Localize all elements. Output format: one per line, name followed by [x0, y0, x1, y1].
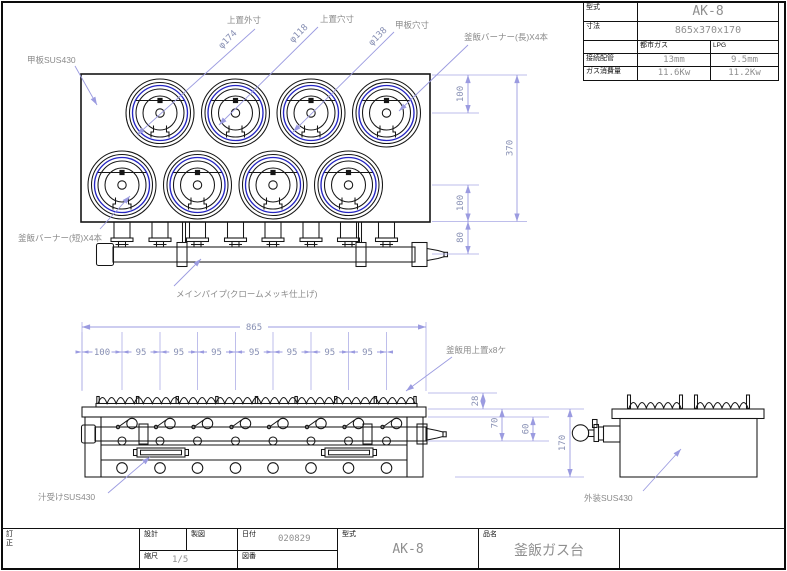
dim-arrow [273, 350, 280, 353]
title-product-cell: 品名 釜飯ガス台 [478, 529, 619, 568]
drawer-slot-left [134, 448, 189, 457]
title-date-label: 日付 [240, 530, 256, 539]
dim-arrow [236, 350, 243, 353]
height-dimensions: 28 70 60 170 [428, 393, 584, 477]
side-body [620, 419, 757, 478]
label-dia-138: φ138 [367, 26, 389, 48]
front-nozzle [427, 429, 443, 441]
drawing-shape [114, 222, 130, 238]
burners-group [88, 79, 421, 219]
title-revision-cell: 訂 正 [2, 529, 139, 568]
dim-60: 60 [522, 424, 532, 435]
burner [88, 151, 156, 219]
label-exterior: 外装SUS430 [584, 493, 633, 503]
dim-arrow [154, 350, 161, 353]
burner [239, 151, 307, 219]
spec-dims-label: 寸法 [584, 22, 637, 31]
front-right-leg [407, 417, 423, 477]
vent-hole [343, 463, 354, 474]
title-model-cell: 型式 AK-8 [337, 529, 478, 568]
vent-hole [192, 463, 203, 474]
drawing-shape [190, 222, 206, 238]
dim-pitch-label: 95 [324, 348, 335, 358]
leader-top-ring-od [137, 29, 255, 135]
front-top-plate [82, 407, 426, 417]
title-design-label: 設計 [142, 530, 158, 539]
burner-ring [344, 181, 352, 189]
spec-dims-value: 865x370x170 [638, 22, 778, 39]
dim-pitch-label: 95 [136, 348, 147, 358]
side-trivet-post [695, 395, 698, 409]
dim-arrow [342, 350, 349, 353]
burner-stem [376, 222, 398, 247]
title-date-value: 020829 [278, 534, 311, 544]
spec-consumption-city: 11.6Kw [638, 67, 710, 79]
spec-col-city-gas: 都市ガス [638, 41, 710, 50]
burner-ring [307, 109, 315, 117]
leader-top-ring-count [406, 357, 452, 391]
burner-pilot [157, 98, 162, 103]
leader-drip-tray [108, 457, 150, 493]
burner [126, 79, 194, 147]
spec-col-lpg: LPG [711, 41, 778, 50]
title-scale-value: 1/5 [172, 555, 188, 565]
dim-pitch-label: 100 [94, 348, 110, 358]
burner-ring [156, 109, 164, 117]
burner-ring [193, 181, 201, 189]
front-nozzle-tip [443, 432, 446, 437]
label-plate-hole: 甲板穴寸 [395, 20, 430, 30]
spec-model-label: 型式 [584, 3, 637, 12]
front-body [101, 417, 407, 477]
burner-stem [300, 222, 322, 247]
front-main-pipe [95, 427, 426, 441]
pipe-end-cap [97, 244, 114, 266]
burner-ring [246, 158, 301, 213]
burner-ring [281, 83, 342, 144]
side-trivet-post [747, 395, 750, 409]
annotation-texts: 甲板SUS430 上置外寸 φ174 上置穴寸 φ118 甲板穴寸 φ138 釜… [18, 14, 633, 503]
title-product-value: 釜飯ガス台 [479, 540, 619, 560]
burner-ring [321, 158, 376, 213]
title-draft-cell: 製図 [186, 529, 237, 550]
pitch-dimension: 10095959595959595 [76, 332, 394, 390]
leader-plate-hole [293, 32, 394, 132]
side-trivet-wave [629, 403, 681, 409]
burner-ring [243, 155, 304, 216]
dim-plan-80: 80 [456, 232, 466, 243]
spec-consumption-label: ガス消費量 [584, 67, 637, 76]
vent-hole [268, 463, 279, 474]
burner-pilot [233, 98, 238, 103]
side-top-plate [612, 409, 764, 419]
spec-consumption-lpg: 11.2Kw [711, 67, 778, 79]
burner-ring [382, 109, 390, 117]
burner-pilot [384, 98, 389, 103]
burner [353, 79, 421, 147]
label-top-ring-count: 釜飯用上置x8ケ [446, 345, 506, 355]
title-model-label: 型式 [340, 530, 356, 539]
vent-hole [117, 463, 128, 474]
dim-arrow [116, 350, 123, 353]
burner-pilot [195, 170, 200, 175]
burner-pilot [308, 98, 313, 103]
drawing-shape [228, 222, 244, 238]
burner [315, 151, 383, 219]
nozzle-tip [444, 252, 448, 256]
label-top-ring-od: 上置外寸 [227, 15, 262, 25]
title-draft-label: 製図 [189, 530, 205, 539]
spec-pipe-lpg: 9.5mm [711, 54, 778, 66]
front-view [82, 397, 447, 478]
side-trivet-post [680, 395, 683, 409]
front-pipe-cap [82, 425, 96, 443]
pipe-fitting [412, 243, 427, 267]
trivet-wave [98, 398, 415, 404]
burner [277, 79, 345, 147]
spec-pipe-label: 接続配管 [584, 54, 637, 63]
leader-exterior [643, 449, 681, 491]
label-dia-118: φ118 [288, 23, 310, 45]
burner-ring [231, 109, 239, 117]
drawing-shape [303, 222, 319, 238]
burner-stem [149, 222, 171, 247]
spec-pipe-city: 13mm [638, 54, 710, 66]
side-trivets [628, 395, 750, 409]
burner-stem [187, 222, 209, 247]
dim-arrow [191, 350, 198, 353]
dim-28: 28 [471, 396, 481, 407]
dim-arrow [82, 350, 89, 353]
dim-pitch-label: 95 [287, 348, 298, 358]
burner-ring [205, 83, 266, 144]
spec-model-value: AK-8 [638, 3, 778, 21]
burner [202, 79, 270, 147]
dim-arrow [267, 350, 274, 353]
title-date-cell: 日付 020829 [237, 529, 337, 550]
valve-knob-ball [572, 425, 588, 441]
burner-stem [262, 222, 284, 247]
drawing-shape [341, 222, 357, 238]
vent-hole [306, 463, 317, 474]
burner [164, 151, 232, 219]
leader-top-ring-hole [219, 27, 318, 125]
trivet-post [335, 397, 337, 404]
dim-pitch-label: 95 [249, 348, 260, 358]
burner-ring [284, 86, 339, 141]
side-view [572, 395, 764, 477]
burner-stem [111, 222, 133, 247]
dim-arrow [387, 350, 394, 353]
side-valve [572, 420, 620, 443]
burner-ring [167, 155, 228, 216]
burner-pilot [346, 170, 351, 175]
dim-arrow [229, 350, 236, 353]
label-top-plate: 甲板SUS430 [27, 55, 76, 65]
dim-arrow [198, 350, 205, 353]
dim-arrow [305, 350, 312, 353]
label-main-pipe: メインパイプ(クロームメッキ仕上げ) [176, 289, 318, 299]
dim-plan-100-bottom: 100 [456, 195, 466, 211]
title-scale-cell: 縮尺 1/5 [139, 550, 237, 568]
dim-pitch-label: 95 [173, 348, 184, 358]
vent-hole [155, 463, 166, 474]
title-block: 訂 正 設計 製図 日付 020829 縮尺 1/5 図番 型式 AK-8 品名… [2, 528, 785, 567]
burner-ring [133, 86, 188, 141]
burner-ring [92, 155, 153, 216]
title-scale-label: 縮尺 [142, 552, 158, 561]
plan-view-outline [81, 74, 430, 222]
drawing-shape [152, 222, 168, 238]
dim-pitch-label: 95 [362, 348, 373, 358]
drawing-shape [379, 222, 395, 238]
burner-ring [359, 86, 414, 141]
title-dwgno-label: 図番 [240, 552, 256, 561]
dim-arrow [160, 350, 167, 353]
dim-170: 170 [558, 435, 568, 451]
burner-pilot [119, 170, 124, 175]
vent-hole [230, 463, 241, 474]
leader-top-plate [75, 66, 97, 105]
burner-ring [170, 158, 225, 213]
drawer-slot-right [322, 448, 377, 457]
title-product-label: 品名 [481, 530, 497, 539]
title-empty-cell [619, 529, 785, 568]
plan-dimensions: 100 370 100 80 [432, 75, 527, 254]
vent-hole [381, 463, 392, 474]
dim-arrow [76, 350, 83, 353]
dim-arrow [122, 350, 129, 353]
burner-pilot [270, 170, 275, 175]
spec-table: 型式 AK-8 寸法 865x370x170 都市ガス LPG 接続配管 13m… [583, 2, 779, 81]
pipe-union-right [356, 243, 366, 267]
label-dia-174: φ174 [217, 29, 239, 51]
trivet-post [176, 397, 178, 404]
dim-arrow [311, 350, 318, 353]
dim-arrow [380, 350, 387, 353]
burner-ring [118, 181, 126, 189]
drawing-sheet: 100 370 100 80 865 10095959595959595 28 [0, 0, 787, 571]
label-drip-tray: 汁受けSUS430 [38, 492, 95, 502]
gas-inlet-nozzle [427, 249, 444, 261]
burner-ring [318, 155, 379, 216]
title-model-value: AK-8 [338, 542, 478, 557]
dim-plan-100-top: 100 [456, 86, 466, 102]
title-design-cell: 設計 [139, 529, 186, 550]
dim-865: 865 [246, 323, 262, 333]
label-burner-long: 釜飯バーナー(長)X4本 [464, 32, 549, 42]
pipe-union-left [177, 243, 187, 267]
label-top-ring-hole: 上置穴寸 [320, 14, 355, 24]
main-pipe [113, 247, 415, 262]
dim-plan-370: 370 [506, 140, 516, 156]
manifold-group [97, 222, 448, 267]
burner-ring [356, 83, 417, 144]
title-dwgno-cell: 図番 [237, 550, 337, 568]
dim-arrow [349, 350, 356, 353]
dim-70: 70 [491, 418, 501, 429]
title-revision-label: 訂 正 [4, 530, 13, 548]
drawing-canvas: 100 370 100 80 865 10095959595959595 28 [0, 0, 787, 571]
label-burner-short: 釜飯バーナー(短)X4本 [18, 233, 103, 243]
side-trivet-post [628, 395, 631, 409]
burner-ring [130, 83, 191, 144]
front-left-leg [85, 417, 101, 477]
burner-ring [269, 181, 277, 189]
drawing-shape [265, 222, 281, 238]
side-trivet-wave [696, 403, 748, 409]
burner-stem [225, 222, 247, 247]
burner-ring [208, 86, 263, 141]
front-width-dimensions: 865 10095959595959595 [76, 322, 427, 392]
dim-pitch-label: 95 [211, 348, 222, 358]
